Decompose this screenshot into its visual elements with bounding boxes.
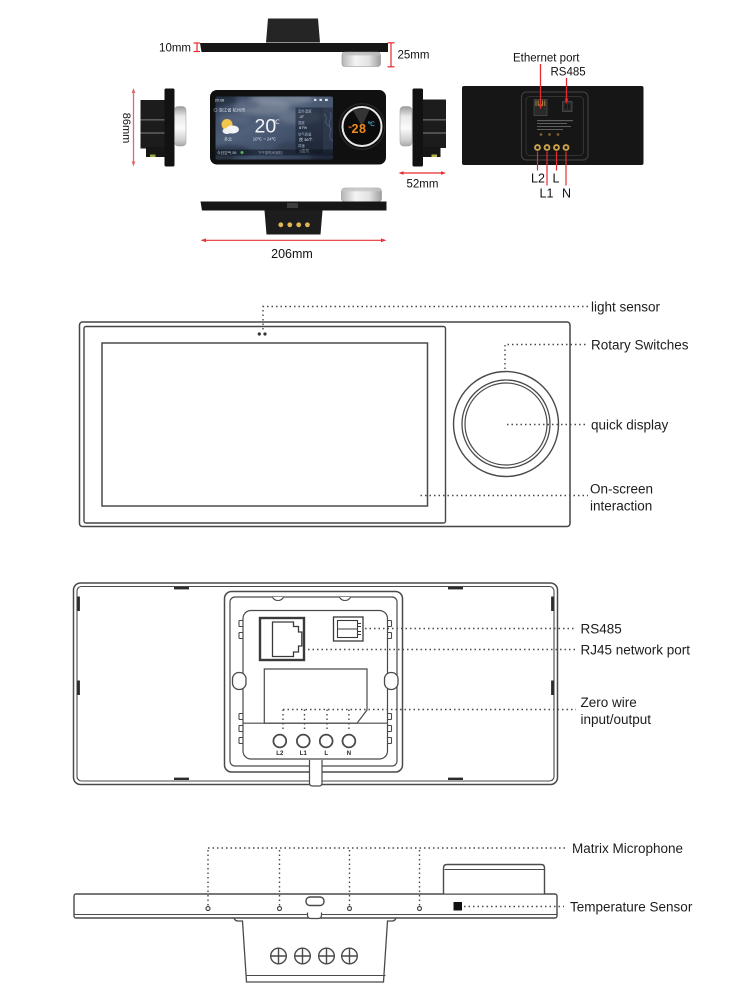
- svg-text:风速: 风速: [298, 143, 305, 148]
- svg-text:Rotary Switches: Rotary Switches: [591, 338, 689, 353]
- svg-text:L1: L1: [540, 187, 554, 201]
- svg-text:20:08: 20:08: [215, 99, 225, 103]
- svg-text:206mm: 206mm: [271, 247, 313, 261]
- svg-text:N: N: [347, 751, 351, 757]
- svg-text:N: N: [562, 187, 571, 201]
- svg-text:℃: ℃: [273, 119, 281, 126]
- svg-text:Zero wire: Zero wire: [581, 695, 637, 710]
- svg-text:28: 28: [352, 122, 367, 136]
- svg-text:Matrix Microphone: Matrix Microphone: [572, 841, 683, 856]
- svg-text:下午茶时间到啦！: 下午茶时间到啦！: [258, 150, 285, 155]
- svg-text:RS485: RS485: [551, 67, 586, 79]
- svg-text:quick display: quick display: [591, 418, 669, 433]
- svg-text:10mm: 10mm: [159, 43, 191, 55]
- svg-text:-6°: -6°: [299, 114, 305, 119]
- svg-text:light sensor: light sensor: [591, 300, 661, 315]
- svg-text:RS485: RS485: [581, 622, 622, 637]
- svg-text:L1: L1: [300, 751, 308, 757]
- svg-text:℃: ℃: [368, 120, 376, 128]
- svg-text:L: L: [324, 751, 328, 757]
- svg-text:Ethernet port: Ethernet port: [513, 53, 580, 65]
- svg-text:input/output: input/output: [581, 712, 652, 727]
- svg-text:10℃ ~ 24℃: 10℃ ~ 24℃: [253, 137, 277, 142]
- svg-text:67%: 67%: [299, 125, 307, 130]
- svg-text:RJ45 network port: RJ45 network port: [581, 643, 691, 658]
- svg-text:空气质量: 空气质量: [298, 132, 312, 137]
- svg-text:25mm: 25mm: [398, 50, 430, 62]
- svg-text:L2: L2: [276, 751, 284, 757]
- svg-text:interaction: interaction: [590, 499, 652, 514]
- svg-text:今日空气 56: 今日空气 56: [217, 150, 236, 155]
- svg-text:L: L: [553, 172, 560, 186]
- svg-text:L2: L2: [531, 172, 545, 186]
- svg-text:良 36个: 良 36个: [299, 136, 313, 142]
- svg-text:On-screen: On-screen: [590, 482, 653, 497]
- svg-text:多云: 多云: [224, 136, 232, 142]
- svg-text:室外温度: 室外温度: [298, 109, 312, 114]
- svg-text:52mm: 52mm: [407, 179, 439, 191]
- svg-text:86mm: 86mm: [120, 113, 132, 144]
- svg-text:◎ 浙江省 杭州市: ◎ 浙江省 杭州市: [214, 107, 246, 114]
- svg-text:Temperature Sensor: Temperature Sensor: [570, 900, 693, 915]
